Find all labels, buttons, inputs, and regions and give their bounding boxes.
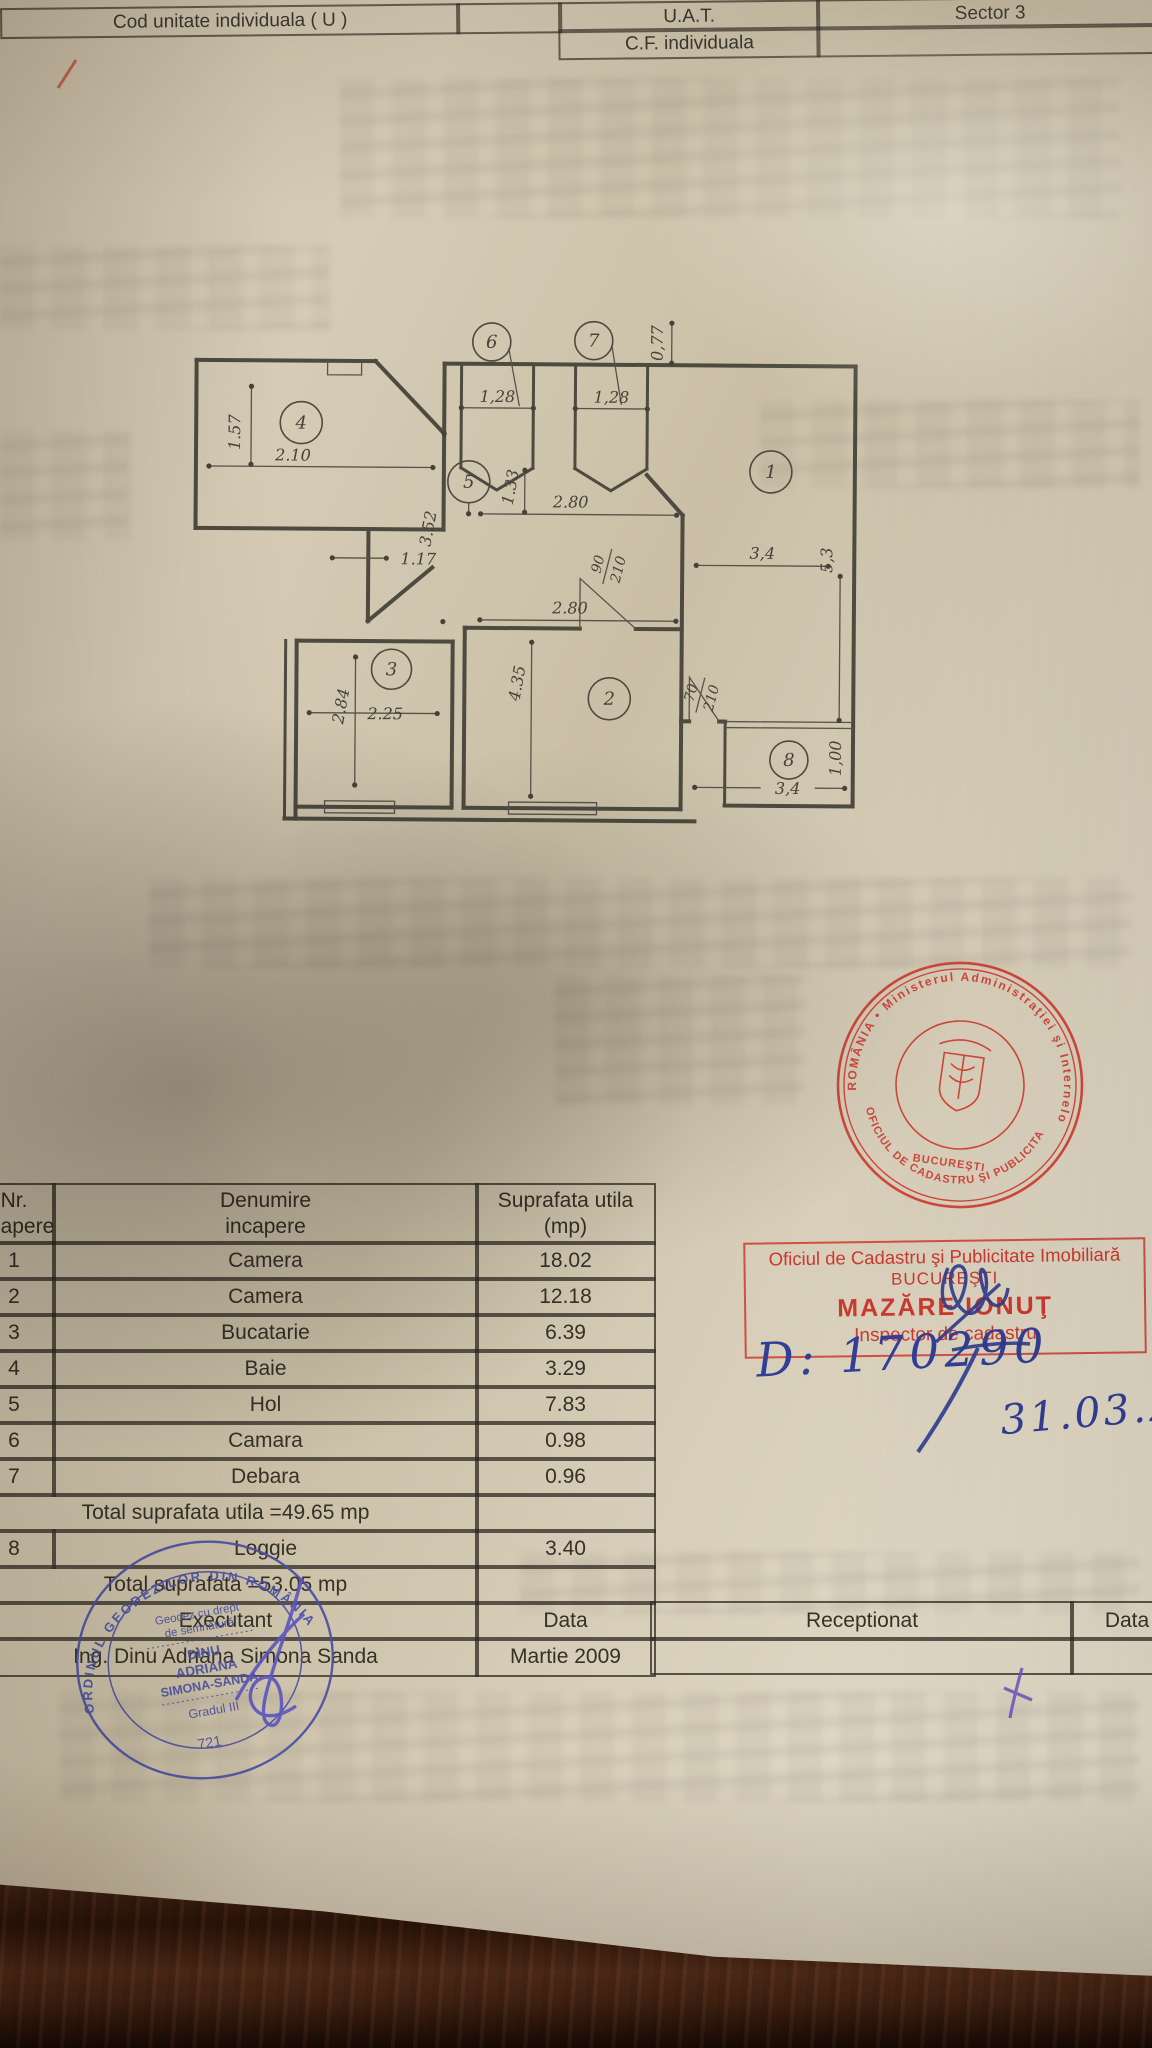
red-pen-mark bbox=[58, 60, 76, 88]
purple-check-mark bbox=[1004, 1668, 1032, 1718]
ink-marks bbox=[0, 0, 1152, 2048]
registration-slash bbox=[918, 1348, 978, 1452]
photographed-cadastral-document: Cod unitate individuala ( U ) U.A.T. Sec… bbox=[0, 0, 1152, 2048]
surveyor-signature bbox=[236, 1578, 304, 1725]
inspector-signature bbox=[936, 1266, 1030, 1350]
